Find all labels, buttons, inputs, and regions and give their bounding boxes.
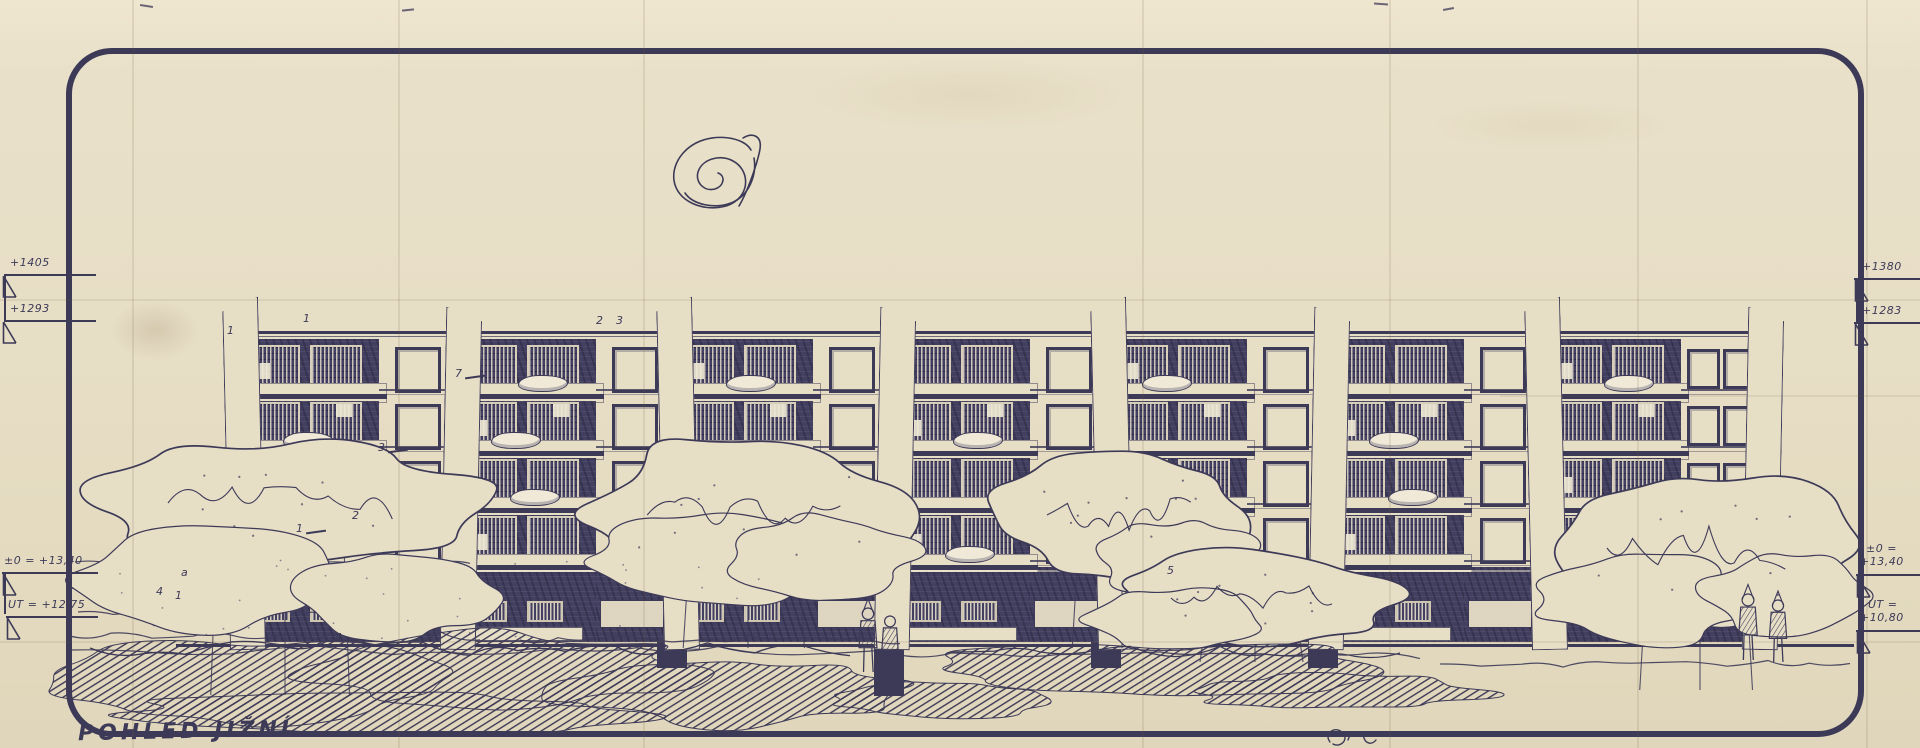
speckle-dot	[119, 573, 121, 575]
speckle-dot	[381, 637, 383, 639]
tree-dot	[795, 554, 797, 556]
facade-annotation: 1	[175, 589, 182, 602]
tree-dot	[1264, 574, 1266, 576]
tree-dot	[698, 498, 700, 500]
figure-head	[885, 616, 896, 627]
figure-leg	[864, 648, 865, 672]
speckle-dot	[391, 568, 393, 570]
tree-dot	[1312, 592, 1314, 594]
tree-dot	[321, 481, 323, 483]
tree-dot	[1660, 518, 1662, 520]
tree-dot	[1070, 522, 1072, 524]
elevation-marker-left-bottom: ±0 = +13,40 UT = +12,75	[0, 550, 110, 650]
tree-dot	[252, 535, 254, 537]
tree-dot	[1264, 622, 1266, 624]
facade-annotation: 2	[596, 314, 603, 327]
terrain-contour	[520, 636, 900, 644]
speckle-dot	[476, 628, 478, 630]
speckle-dot	[153, 625, 155, 627]
level-flag-icon	[2, 322, 18, 345]
signature-scribble-icon	[1318, 724, 1388, 748]
tree-dot	[202, 508, 204, 510]
speckle-dot	[223, 628, 225, 630]
speckle-dot	[515, 636, 517, 638]
tree-dot	[1789, 515, 1791, 517]
tree-dot	[1175, 498, 1177, 500]
elevation-value: +10,80	[1860, 611, 1904, 624]
tree-dot	[1310, 602, 1312, 604]
tree-dot	[680, 504, 682, 506]
speckle-dot	[758, 578, 760, 580]
tree-dot	[238, 476, 240, 478]
speckle-dot	[287, 569, 289, 571]
tree-dot	[1756, 518, 1758, 520]
elevation-value: UT = +12,75	[8, 598, 85, 611]
facade-annotation: a	[181, 566, 188, 579]
speckle-dot	[280, 560, 282, 562]
figure-body	[859, 621, 877, 648]
tree-dot	[848, 476, 850, 478]
tree-dot	[372, 525, 374, 527]
speckle-dot	[707, 623, 709, 625]
figure-body	[882, 628, 899, 653]
facade-annotation: 5	[1167, 564, 1174, 577]
tree-dot	[1311, 610, 1313, 612]
speckle-dot	[239, 600, 241, 602]
tree-dot	[674, 532, 676, 534]
speckle-dot	[514, 563, 516, 565]
speckle-dot	[205, 634, 207, 636]
tree-dot	[1125, 497, 1127, 499]
speckle-dot	[698, 566, 700, 568]
elevation-marker-right-bottom: ±0 = +13,40 UT = +10,80	[1856, 542, 1920, 662]
figure-leg	[1752, 635, 1753, 660]
level-connector	[1856, 280, 1858, 322]
drawing-title: POHLED JIŽNÍ	[78, 717, 294, 747]
figure-leg	[1782, 638, 1783, 662]
tree-dot	[638, 546, 640, 548]
tree-dot	[1182, 479, 1184, 481]
level-flag-icon	[6, 618, 22, 641]
figure-leg	[886, 653, 887, 676]
speckle-dot	[276, 565, 278, 567]
figure-body	[1739, 607, 1757, 635]
tree-dot	[1150, 536, 1152, 538]
elevation-label: ±0 =	[1866, 542, 1897, 555]
speckle-dot	[575, 614, 577, 616]
elevation-value: +13,40	[1860, 555, 1904, 568]
tree-dot	[301, 503, 303, 505]
terrain-contour	[1440, 661, 1850, 668]
speckle-dot	[773, 631, 775, 633]
elevation-value: +1405	[10, 256, 50, 269]
facade-annotation: 3	[378, 441, 385, 454]
tree-dot	[265, 474, 267, 476]
tree-dot	[233, 525, 235, 527]
logo-scribble-icon	[655, 128, 785, 223]
elevation-value: ±0 = +13,40	[4, 554, 83, 567]
pedestrian-figure-pair	[859, 599, 898, 676]
level-connector	[4, 574, 6, 614]
tree-dot	[1671, 589, 1673, 591]
tree-dot	[1184, 615, 1186, 617]
speckle-dot	[248, 627, 250, 629]
figure-leg	[1774, 638, 1775, 662]
speckle-dot	[622, 564, 624, 566]
figure-leg	[1743, 635, 1744, 660]
speckle-dot	[625, 569, 627, 571]
tree-dot	[1218, 585, 1220, 587]
facade-annotation: 3	[616, 314, 623, 327]
facade-annotation: 1	[303, 312, 310, 325]
elevation-label: UT =	[1868, 598, 1897, 611]
figure-body	[1769, 612, 1786, 638]
scenery-sketch-layer	[0, 0, 1920, 748]
facade-annotation: 7	[455, 367, 462, 380]
speckle-dot	[625, 582, 627, 584]
facade-annotation: 1	[296, 522, 303, 535]
tree-dot	[1197, 591, 1199, 593]
tree-dot	[1598, 574, 1600, 576]
elevation-value: +1283	[1862, 304, 1902, 317]
speckle-dot	[162, 607, 164, 609]
elevation-value: +1380	[1862, 260, 1902, 273]
speckle-dot	[701, 587, 703, 589]
tree-dot	[1734, 505, 1736, 507]
elevation-marker-left-top: +1405 +1293	[0, 250, 110, 360]
level-connector	[4, 276, 6, 320]
speckle-dot	[333, 622, 335, 624]
tree-dot	[743, 528, 745, 530]
speckle-dot	[407, 620, 409, 622]
facade-annotation: 2	[352, 509, 359, 522]
tree-dot	[203, 474, 205, 476]
speckle-dot	[457, 616, 459, 618]
speckle-dot	[366, 577, 368, 579]
facade-annotation: 1	[227, 324, 234, 337]
figure-hood	[862, 599, 874, 614]
speckle-dot	[406, 637, 408, 639]
elevation-marker-right-top: +1380 +1283	[1854, 256, 1920, 366]
speckle-dot	[478, 627, 480, 629]
speckle-dot	[736, 597, 738, 599]
tree-dot	[1769, 572, 1771, 574]
facade-annotation: 4	[156, 585, 163, 598]
level-flag-icon	[1856, 576, 1872, 599]
tree-dot	[713, 484, 715, 486]
speckle-dot	[121, 592, 123, 594]
tree-dot	[1176, 598, 1178, 600]
speckle-dot	[619, 625, 621, 627]
tree-dot	[858, 541, 860, 543]
figure-leg	[894, 653, 895, 676]
speckle-dot	[383, 593, 385, 595]
speckle-dot	[459, 598, 461, 600]
tree-dot	[1077, 514, 1079, 516]
tree-dot	[1087, 501, 1089, 503]
tree-dot	[1043, 491, 1045, 493]
elevation-value: +1293	[10, 302, 50, 315]
tree-sketch-right	[1535, 476, 1873, 690]
speckle-dot	[754, 629, 756, 631]
speckle-dot	[566, 561, 568, 563]
speckle-dot	[325, 575, 327, 577]
facade-annotation: 4	[335, 631, 342, 644]
tree-canopy	[1079, 588, 1261, 650]
tree-dot	[1195, 498, 1197, 500]
level-flag-icon	[1856, 632, 1872, 655]
tree-dot	[1681, 510, 1683, 512]
speckle-dot	[469, 632, 471, 634]
level-flag-icon	[1854, 324, 1870, 347]
